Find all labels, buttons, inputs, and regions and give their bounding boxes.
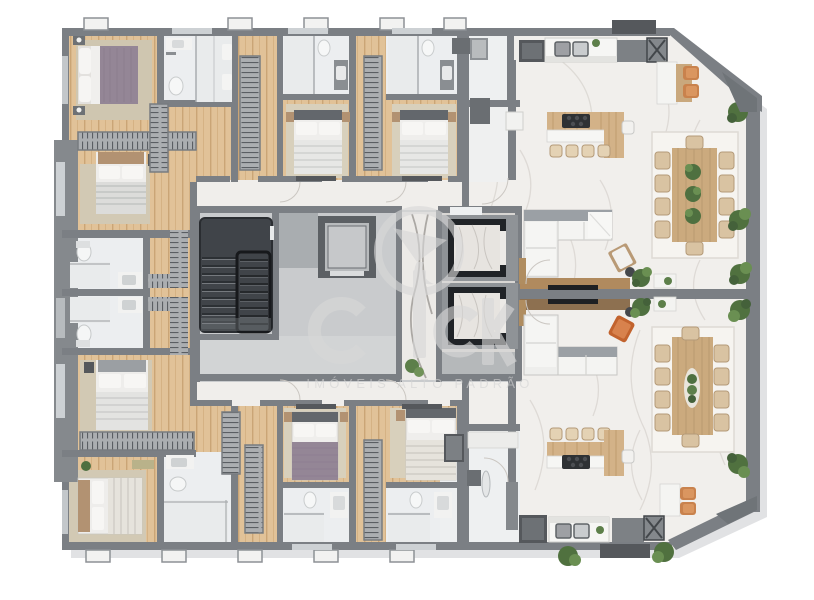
svg-text:IMÓVEIS ALTO PADRÃO: IMÓVEIS ALTO PADRÃO — [306, 376, 533, 391]
